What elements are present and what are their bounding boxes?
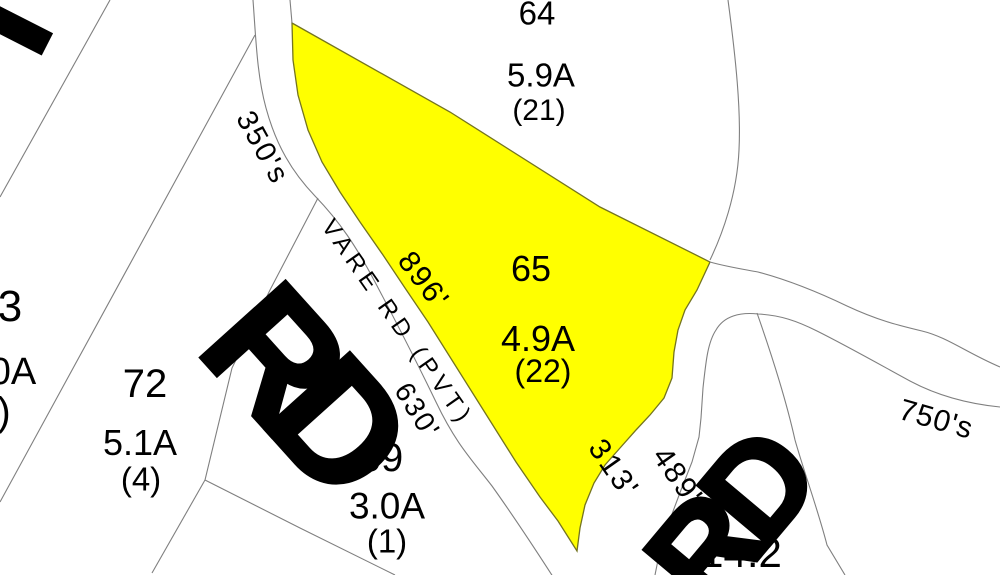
- parcel-65-polygon[interactable]: [292, 23, 710, 551]
- parcel-64-lot-number: 64: [519, 0, 556, 30]
- edge-parcel-lot-number-partial: 3: [0, 285, 22, 329]
- parcel-64-card: (21): [512, 96, 565, 126]
- parcel-69-card: (1): [367, 525, 407, 558]
- edge-parcel-acreage-partial: 0A: [0, 353, 36, 391]
- parcel-72-acreage: 5.1A: [103, 425, 177, 461]
- tax-parcel-map: 64 5.9A (21) 65 4.9A (22) 72 5.1A (4) 69…: [0, 0, 1000, 575]
- parcel-72-lot-number: 72: [123, 364, 168, 404]
- parcel-65-lot-number: 65: [511, 251, 551, 287]
- parcel-65-acreage: 4.9A: [501, 321, 575, 357]
- road-edge-south-east-branch: [703, 314, 1000, 407]
- parcel-64-acreage: 5.9A: [507, 59, 575, 92]
- parcel-72-card: (4): [121, 463, 161, 496]
- parcel-65-card: (22): [515, 355, 572, 387]
- road-edge-east-top-sliver: [290, 0, 292, 23]
- edge-parcel-card-partial: ): [0, 392, 11, 432]
- parcel-69-acreage: 3.0A: [349, 488, 425, 525]
- boundary-line-parcel64-east: [710, 0, 739, 260]
